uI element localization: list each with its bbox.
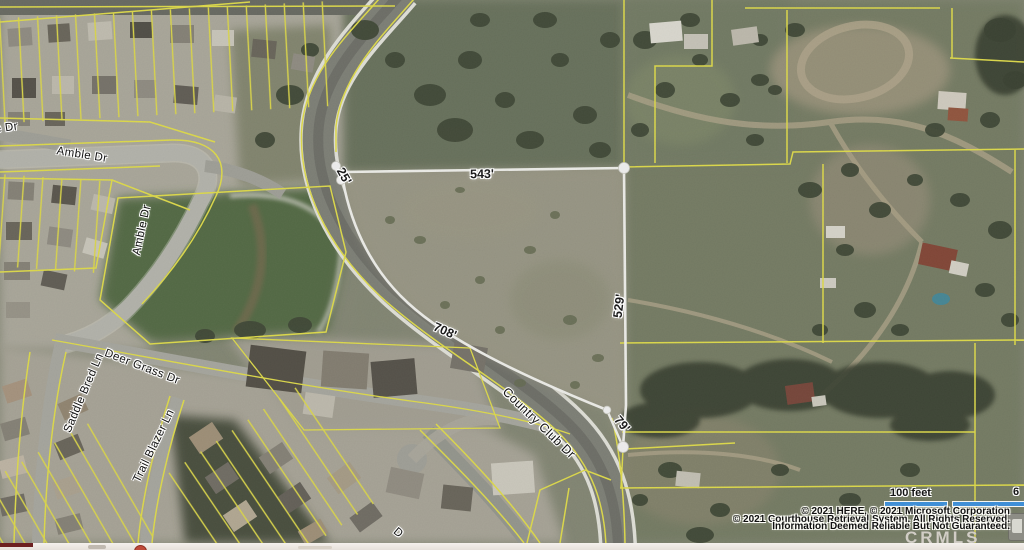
grain-overlay [0,0,1024,543]
bottom-ui-strip [0,543,1024,550]
satellite-map-viewport[interactable]: Amble Dr Amble Dr Amble Dr Deer Grass Dr… [0,0,1024,543]
partial-logo [1008,513,1024,541]
map-graphics [0,0,1024,543]
scale-label-partial: 6 [1013,486,1019,498]
attribution-line-3: Information Deemed Reliable But Not Guar… [733,523,1010,531]
measurement-label-543: 543' [470,167,494,181]
map-attribution: © 2021 HERE, © 2021 Microsoft Corporatio… [733,508,1010,531]
measurement-label-529: 529' [611,293,628,318]
scale-label: 100 feet [890,487,931,499]
strip-partial-element-gray [88,545,106,549]
strip-partial-element-left [0,543,33,547]
strip-partial-element-tan [298,546,332,549]
strip-partial-red-icon [134,545,147,550]
screenshot-root: { "map": { "type": "satellite-parcel-map… [0,0,1024,550]
